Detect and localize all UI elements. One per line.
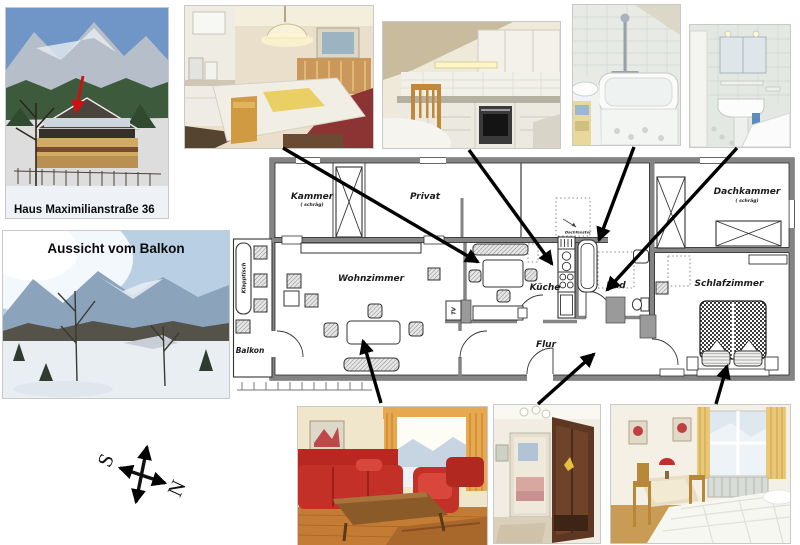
page: Haus Maximilianstraße 36 Aussicht vom Ba: [0, 0, 800, 545]
photo-bath-tub: [573, 5, 680, 145]
label-dachkammer-sub: ( schräg): [735, 198, 758, 204]
compass-south-label: S: [92, 450, 119, 471]
arrow-tub-photo-to-plan: [599, 147, 634, 240]
compass-axis-we: [136, 447, 147, 502]
kitchen-unit: [558, 237, 575, 318]
inner-walls: [272, 162, 790, 376]
photo-living-room-illustration: [298, 407, 487, 545]
photo-kitchen-illustration: [383, 22, 560, 148]
photo-bedroom-illustration: [611, 405, 790, 543]
kammer-cross-box: [333, 163, 365, 238]
label-balkon: Balkon: [236, 346, 265, 355]
label-wohnzimmer: Wohnzimmer: [338, 274, 405, 284]
compass-axis-sn: [120, 468, 165, 483]
photo-dining: [185, 6, 373, 148]
arrow-living-photo-to-plan: [363, 341, 381, 403]
compass-north-label: N: [163, 476, 191, 500]
floorplan: Kammer ( schräg) Privat Dachkammer ( sch…: [234, 157, 796, 390]
label-privat: Privat: [410, 192, 441, 202]
photo-hallway-illustration: [494, 405, 600, 543]
photo-kitchen: [383, 22, 560, 148]
connector-arrows: [283, 147, 737, 404]
label-dachkammer: Dachkammer: [714, 187, 781, 197]
photo-bath-sink: [690, 25, 790, 147]
label-flur: Flur: [536, 340, 557, 350]
label-kammer-sub: ( schräg): [300, 202, 323, 208]
label-kammer: Kammer: [291, 192, 334, 202]
photo-bedroom: [611, 405, 790, 543]
photo-bath-sink-illustration: [690, 25, 790, 147]
arrow-hall-photo-to-plan: [538, 354, 594, 404]
doors: [268, 291, 678, 381]
photo-bath-tub-illustration: [573, 5, 680, 145]
terrace-railing: [237, 382, 372, 390]
windows: [282, 157, 796, 376]
living-room-furniture: [284, 243, 461, 371]
photo-dining-illustration: [185, 6, 373, 148]
compass: S N: [92, 447, 190, 502]
balcony-caption: Aussicht vom Balkon: [47, 241, 184, 256]
label-bad: Bad: [606, 281, 626, 291]
sloped-roof-dots: [528, 198, 690, 288]
dachkammer-cross-boxes: [657, 177, 787, 264]
photo-hallway: [494, 405, 600, 543]
label-schlafzimmer: Schlafzimmer: [695, 279, 764, 289]
bathroom-fixtures: [461, 240, 656, 338]
photo-house-illustration: Haus Maximilianstraße 36: [6, 8, 168, 218]
label-kueche: Küche: [530, 283, 561, 293]
bedroom-furniture: [656, 282, 778, 370]
photo-house-exterior: Haus Maximilianstraße 36: [6, 8, 168, 218]
wall-edges: [274, 163, 789, 338]
arrow-sink-photo-to-plan: [607, 148, 737, 290]
house-caption: Haus Maximilianstraße 36: [14, 204, 155, 216]
balcony-area: [234, 239, 273, 377]
label-tv: TV: [452, 306, 458, 315]
photo-balcony-view: Aussicht vom Balkon: [3, 231, 229, 398]
arrow-kitchen-photo-to-plan: [469, 150, 552, 264]
label-klapptisch: Klapptisch: [242, 262, 248, 293]
dining-furniture: [469, 244, 537, 320]
arrow-dining-photo-to-plan: [283, 148, 478, 262]
arrow-bedroom-photo-to-plan: [716, 366, 727, 404]
photo-balcony-illustration: Aussicht vom Balkon: [3, 231, 229, 398]
photo-living-room: [298, 407, 487, 545]
label-dachfenster: Dachfenster: [565, 230, 592, 235]
